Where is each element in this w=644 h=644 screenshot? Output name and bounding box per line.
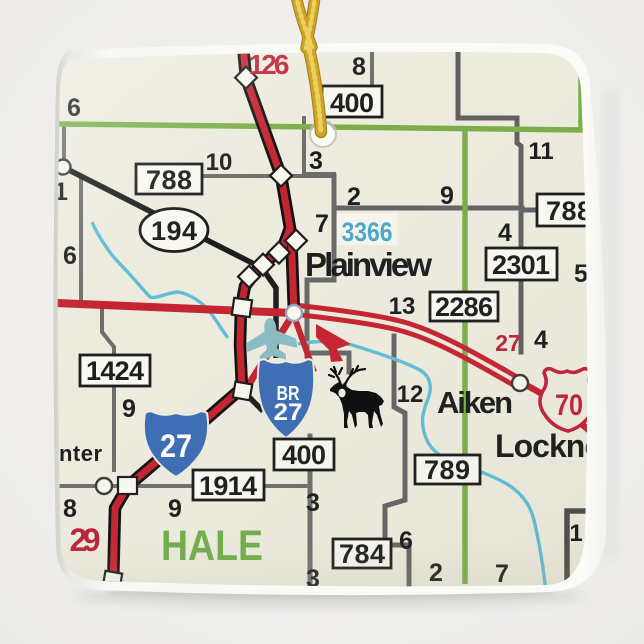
svg-text:HALE: HALE xyxy=(161,522,263,570)
